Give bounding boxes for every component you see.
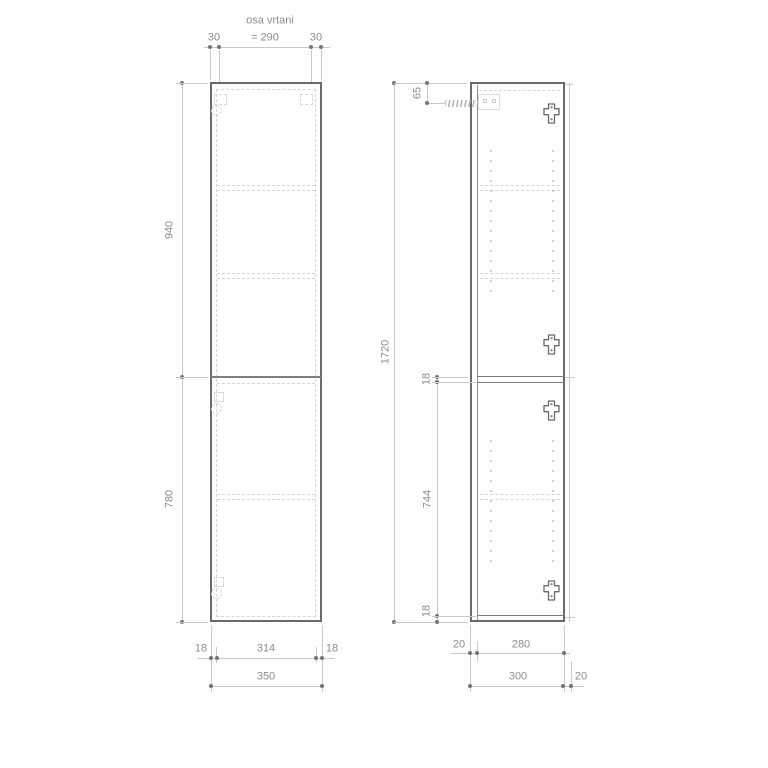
shelf-pin-hole	[490, 230, 492, 232]
shelf-pin-hole	[490, 440, 492, 442]
dim-label-940: 940	[165, 221, 176, 239]
front-view-carcass-hidden-edge	[216, 89, 316, 617]
hinge-cup-mark	[211, 588, 222, 599]
shelf-pin-hole	[552, 520, 554, 522]
front-shelf-hidden-line	[217, 190, 315, 191]
side-shelf-hidden-line	[480, 190, 560, 191]
side-view-top-panel-hidden	[479, 90, 560, 91]
bracket-screw-hole	[492, 99, 496, 103]
dim-dot	[209, 684, 213, 688]
shelf-pin-hole	[490, 510, 492, 512]
front-shelf-hidden-line	[217, 494, 315, 495]
shelf-pin-hole	[552, 230, 554, 232]
dim-label-18: 18	[326, 644, 338, 655]
dim-label-300: 300	[509, 672, 527, 683]
shelf-pin-hole	[490, 160, 492, 162]
extension-line	[176, 622, 208, 623]
shelf-pin-hole	[490, 480, 492, 482]
shelf-pin-hole	[552, 210, 554, 212]
cam-lock-fitting-icon	[543, 334, 560, 360]
extension-line	[432, 377, 468, 378]
extension-line	[321, 50, 322, 80]
side-view-bottom-panel	[477, 615, 565, 621]
dim-dot	[314, 656, 318, 660]
shelf-pin-hole	[552, 200, 554, 202]
extension-stub	[565, 377, 575, 378]
dim-dot	[320, 656, 324, 660]
hanger-screw-icon	[445, 100, 478, 107]
shelf-pin-hole	[552, 290, 554, 292]
shelf-pin-hole	[490, 170, 492, 172]
shelf-pin-hole	[490, 220, 492, 222]
shelf-pin-hole	[490, 450, 492, 452]
dim-dot	[215, 656, 219, 660]
dim-dot	[468, 651, 472, 655]
dim-label-30-right: 30	[310, 33, 322, 44]
shelf-pin-hole	[552, 220, 554, 222]
extension-line	[470, 625, 471, 692]
shelf-pin-hole	[490, 190, 492, 192]
dim-label-350: 350	[257, 672, 275, 683]
extension-line	[311, 50, 312, 82]
dim-dot	[475, 651, 479, 655]
dim-label-780: 780	[165, 490, 176, 508]
shelf-pin-hole	[552, 240, 554, 242]
side-shelf-hidden-line	[480, 185, 560, 186]
dim-label-65: 65	[413, 87, 424, 99]
extension-line	[176, 377, 208, 378]
front-shelf-hidden-line	[217, 278, 315, 279]
dim-label-314: 314	[257, 644, 275, 655]
extension-line	[176, 83, 208, 84]
extension-line	[394, 83, 467, 84]
shelf-pin-hole	[490, 470, 492, 472]
hinge-plate-mark	[300, 94, 313, 105]
dim-line	[211, 686, 322, 687]
cam-lock-fitting-icon	[543, 580, 560, 606]
dim-dot	[468, 684, 472, 688]
shelf-pin-hole	[490, 550, 492, 552]
shelf-pin-hole	[490, 560, 492, 562]
dim-label-1720: 1720	[381, 340, 392, 364]
dim-label-18-bottom: 18	[422, 605, 433, 617]
technical-drawing-cabinet: osa vrtani 30 = 290 30 940 780 18 314 18…	[0, 0, 768, 768]
hinge-plate-mark	[214, 94, 227, 105]
dim-dot	[320, 684, 324, 688]
dim-line	[437, 377, 438, 622]
shelf-pin-hole	[490, 540, 492, 542]
shelf-pin-hole	[552, 500, 554, 502]
extension-line	[394, 622, 467, 623]
shelf-pin-hole	[552, 440, 554, 442]
side-shelf-hidden-line	[480, 494, 560, 495]
dim-dot	[209, 656, 213, 660]
side-view-divider-panel	[477, 376, 565, 383]
shelf-pin-hole	[552, 460, 554, 462]
dim-dot	[217, 45, 221, 49]
front-view-divider	[211, 376, 321, 378]
dim-line	[427, 83, 428, 103]
drill-axis-title: osa vrtani	[246, 16, 294, 27]
dim-label-18-divider: 18	[422, 373, 433, 385]
dim-label-280: 280	[512, 640, 530, 651]
front-view-divider-hidden	[217, 383, 315, 384]
shelf-pin-hole	[490, 520, 492, 522]
dim-dot	[425, 81, 429, 85]
shelf-pin-hole	[552, 190, 554, 192]
side-shelf-hidden-line	[480, 499, 560, 500]
dim-dot	[309, 45, 313, 49]
shelf-pin-hole	[490, 200, 492, 202]
extension-stub	[565, 617, 575, 618]
shelf-pin-hole	[552, 270, 554, 272]
shelf-pin-hole	[552, 250, 554, 252]
dim-label-20-door: 20	[453, 640, 465, 651]
shelf-pin-hole	[490, 210, 492, 212]
shelf-pin-hole	[490, 260, 492, 262]
shelf-pin-hole	[490, 460, 492, 462]
shelf-pin-hole	[552, 470, 554, 472]
dim-label-744: 744	[423, 490, 434, 508]
shelf-pin-hole	[552, 480, 554, 482]
dim-dot	[208, 45, 212, 49]
shelf-pin-hole	[490, 490, 492, 492]
dim-label-20-back: 20	[575, 672, 587, 683]
shelf-pin-hole	[552, 490, 554, 492]
dim-line	[470, 686, 584, 687]
dim-dot	[435, 620, 439, 624]
extension-line	[210, 50, 211, 80]
front-shelf-hidden-line	[217, 185, 315, 186]
cam-lock-fitting-icon	[543, 400, 560, 426]
front-shelf-hidden-line	[217, 499, 315, 500]
shelf-pin-hole	[552, 530, 554, 532]
front-shelf-hidden-line	[217, 273, 315, 274]
shelf-pin-hole	[552, 560, 554, 562]
shelf-pin-hole	[552, 170, 554, 172]
dim-label-30-left: 30	[208, 33, 220, 44]
dim-line	[394, 83, 395, 622]
shelf-pin-hole	[552, 280, 554, 282]
shelf-pin-hole	[490, 180, 492, 182]
side-view-door-edge	[477, 85, 478, 620]
shelf-pin-hole	[490, 290, 492, 292]
shelf-pin-hole	[552, 150, 554, 152]
hinge-plate-mark	[214, 392, 224, 402]
shelf-pin-hole	[552, 160, 554, 162]
dim-label-290: = 290	[251, 33, 279, 44]
extension-line	[432, 382, 476, 383]
shelf-pin-hole	[490, 250, 492, 252]
shelf-pin-hole	[552, 550, 554, 552]
shelf-pin-hole	[552, 450, 554, 452]
extension-line	[219, 50, 220, 82]
shelf-pin-hole	[490, 150, 492, 152]
side-shelf-hidden-line	[480, 278, 560, 279]
hinge-plate-mark	[214, 577, 224, 587]
side-shelf-hidden-line	[480, 273, 560, 274]
bracket-screw-hole	[483, 99, 487, 103]
shelf-pin-hole	[490, 270, 492, 272]
hinge-cup-mark	[211, 105, 222, 116]
extension-line	[429, 103, 446, 104]
dim-dot	[319, 45, 323, 49]
extension-line	[316, 647, 317, 663]
cam-lock-fitting-icon	[543, 103, 560, 129]
dim-dot	[569, 684, 573, 688]
extension-line	[216, 647, 217, 663]
wall-hanger-bracket	[478, 94, 500, 110]
dim-label-18: 18	[195, 644, 207, 655]
dim-dot	[561, 684, 565, 688]
shelf-pin-hole	[490, 530, 492, 532]
shelf-pin-hole	[490, 280, 492, 282]
shelf-pin-hole	[552, 540, 554, 542]
dim-dot	[562, 651, 566, 655]
hinge-cup-mark	[211, 403, 222, 414]
extension-line	[564, 625, 565, 692]
dim-line	[182, 83, 183, 622]
shelf-pin-hole	[490, 240, 492, 242]
extension-stub	[565, 84, 573, 85]
extension-line	[432, 616, 476, 617]
shelf-pin-hole	[552, 510, 554, 512]
side-view-back-rail-line	[569, 83, 570, 622]
shelf-pin-hole	[490, 500, 492, 502]
shelf-pin-hole	[552, 260, 554, 262]
shelf-pin-hole	[552, 180, 554, 182]
